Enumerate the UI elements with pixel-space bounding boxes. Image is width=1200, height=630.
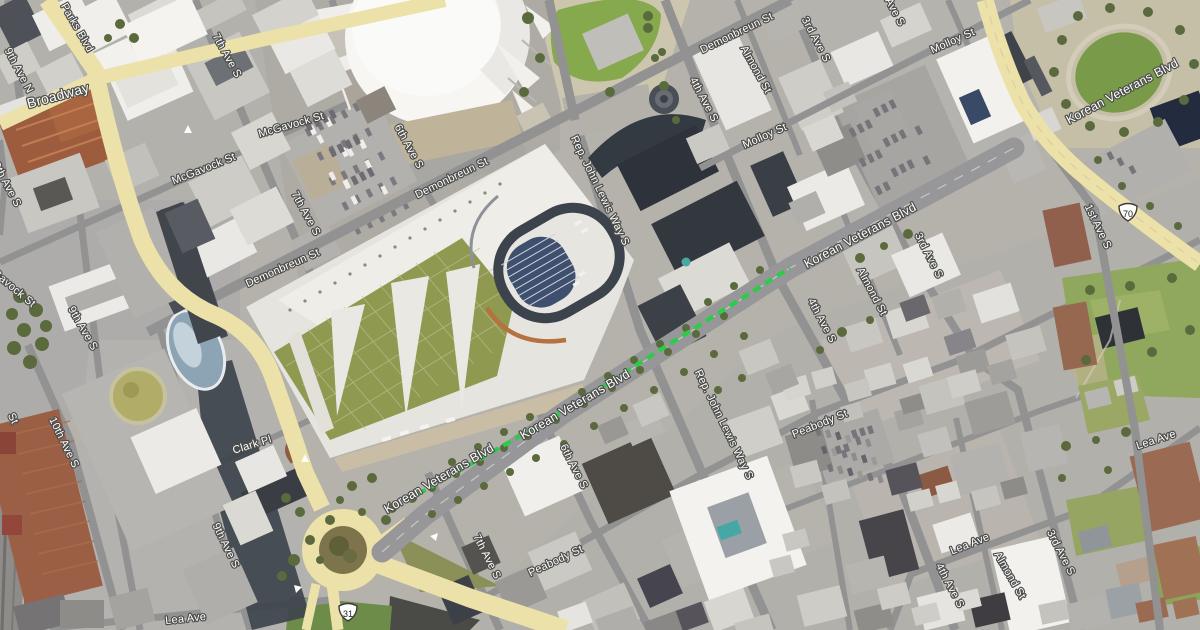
svg-text:31: 31 [343,609,353,619]
svg-text:70: 70 [1123,209,1133,219]
